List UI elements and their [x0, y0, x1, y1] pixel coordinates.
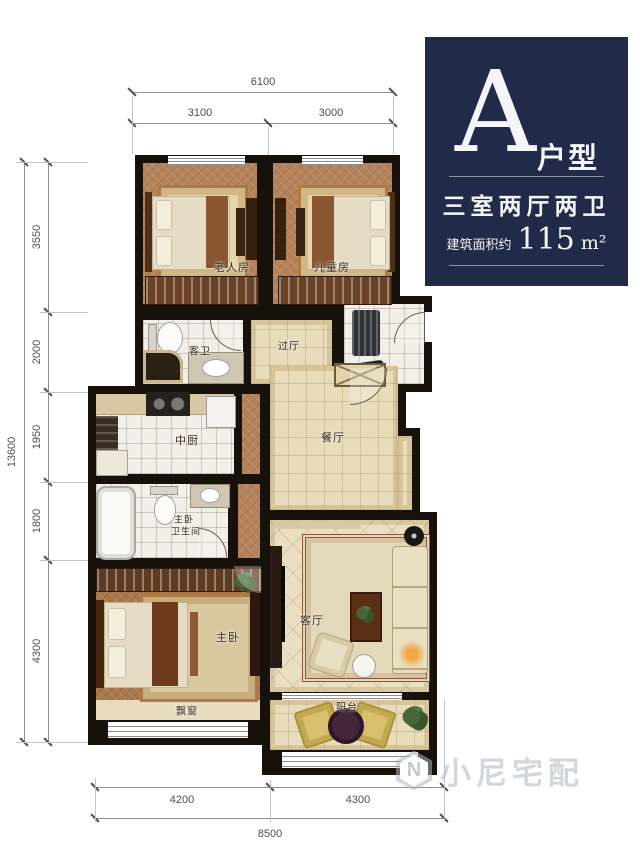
dim-top-left: 3100 [188, 107, 212, 119]
floorplan-page: 6100 3100 3000 13600 3550 2000 1950 1800… [0, 0, 640, 853]
blanket [152, 602, 178, 686]
dim-left-seg-4: 1800 [31, 509, 43, 533]
dim-extension [268, 127, 269, 157]
window-elder-top [168, 156, 245, 165]
panel-divider-bottom [449, 265, 604, 266]
label-guest-bath: 客卫 [189, 343, 211, 358]
area-prefix: 建筑面积约 [447, 234, 512, 253]
toilet-tank [150, 486, 178, 495]
label-vestibule: 过厅 [278, 338, 300, 353]
dim-bottom-total: 8500 [258, 828, 282, 840]
dim-extension [132, 96, 133, 154]
pillow [108, 608, 126, 640]
unit-type-letter: A [455, 41, 536, 187]
label-bay-window: 飘窗 [176, 703, 198, 718]
speaker [404, 526, 424, 546]
dim-extension [16, 162, 88, 163]
area-unit: m² [581, 232, 607, 254]
toilet [154, 495, 176, 525]
blanket [312, 196, 334, 268]
shower [143, 350, 183, 383]
dim-line-left-total [24, 162, 25, 742]
dim-left-seg-5: 4300 [31, 639, 43, 663]
dim-extension [40, 312, 88, 313]
watermark-text: 小尼宅配 [440, 748, 584, 793]
entry-opening [425, 312, 433, 342]
label-master-bath-2: 卫生间 [171, 525, 201, 538]
window-bay [108, 722, 248, 738]
label-balcony: 阳台 [336, 699, 358, 714]
wardrobe [278, 276, 392, 305]
dim-line-left-segments [48, 162, 49, 742]
label-kitchen: 中厨 [175, 432, 199, 448]
plant [356, 606, 374, 624]
dim-extension [95, 778, 96, 822]
dim-line-top-segments [132, 123, 393, 124]
dim-left-seg-2: 2000 [31, 340, 43, 364]
dim-extension [40, 482, 88, 483]
dim-extension [393, 96, 394, 154]
dim-line-top-total [132, 92, 393, 93]
fridge [206, 396, 236, 428]
label-child-room: 儿童房 [314, 259, 350, 275]
label-dining: 餐厅 [321, 429, 345, 445]
floor-lamp [398, 640, 426, 668]
cabinet [275, 198, 286, 260]
stove [146, 392, 190, 416]
area-row: 建筑面积约 115 m² [425, 222, 628, 257]
dim-bottom-left: 4200 [170, 794, 194, 806]
dim-extension [270, 780, 271, 822]
toilet-tank [148, 324, 157, 352]
area-value: 115 [518, 222, 575, 257]
cabinet-strip [276, 521, 360, 529]
dim-left-seg-3: 1950 [31, 425, 43, 449]
dim-left-seg-1: 3550 [31, 225, 43, 249]
tv-bench [236, 208, 245, 256]
pillow [108, 646, 126, 678]
dim-top-right: 3000 [319, 107, 343, 119]
sink-basin [200, 488, 220, 503]
pillow [370, 236, 386, 266]
corridor-lower [238, 484, 260, 558]
dim-bottom-right: 4300 [346, 794, 370, 806]
side-table [352, 654, 376, 678]
tv-cabinet [250, 592, 260, 676]
blanket [206, 196, 228, 268]
wardrobe [145, 276, 259, 305]
bed-bench [190, 612, 198, 676]
unit-type-label: 户型 [537, 135, 599, 177]
appliance [352, 310, 380, 356]
dim-extension [16, 742, 88, 743]
bed-headboard [96, 600, 104, 688]
plant [402, 706, 428, 732]
window-balcony [282, 752, 418, 768]
bathtub [96, 486, 136, 560]
info-panel: A 户型 三室两厅两卫 建筑面积约 115 m² [425, 37, 628, 286]
dim-extension [40, 560, 88, 561]
dim-extension [444, 700, 445, 822]
tv-bench [296, 208, 305, 256]
bed-headboard [145, 192, 152, 272]
rooms-summary: 三室两厅两卫 [425, 187, 628, 221]
label-elder-room: 老人房 [214, 259, 250, 275]
dim-extension [40, 392, 88, 393]
pillow [370, 200, 386, 230]
kitchen-sink [96, 450, 128, 476]
panel-divider-top [449, 176, 604, 177]
cabinet [246, 198, 257, 260]
pillow [156, 236, 172, 266]
label-master-bedroom: 主卧 [216, 629, 240, 645]
dim-left-total: 13600 [6, 437, 18, 468]
pillow [156, 200, 172, 230]
window-child-top [302, 156, 363, 165]
sink-basin [202, 359, 230, 377]
corridor-upper [242, 394, 260, 474]
dim-top-total: 6100 [251, 76, 275, 88]
room-dining-ext [398, 436, 412, 510]
tv [281, 566, 285, 642]
label-living-room: 客厅 [300, 612, 324, 628]
